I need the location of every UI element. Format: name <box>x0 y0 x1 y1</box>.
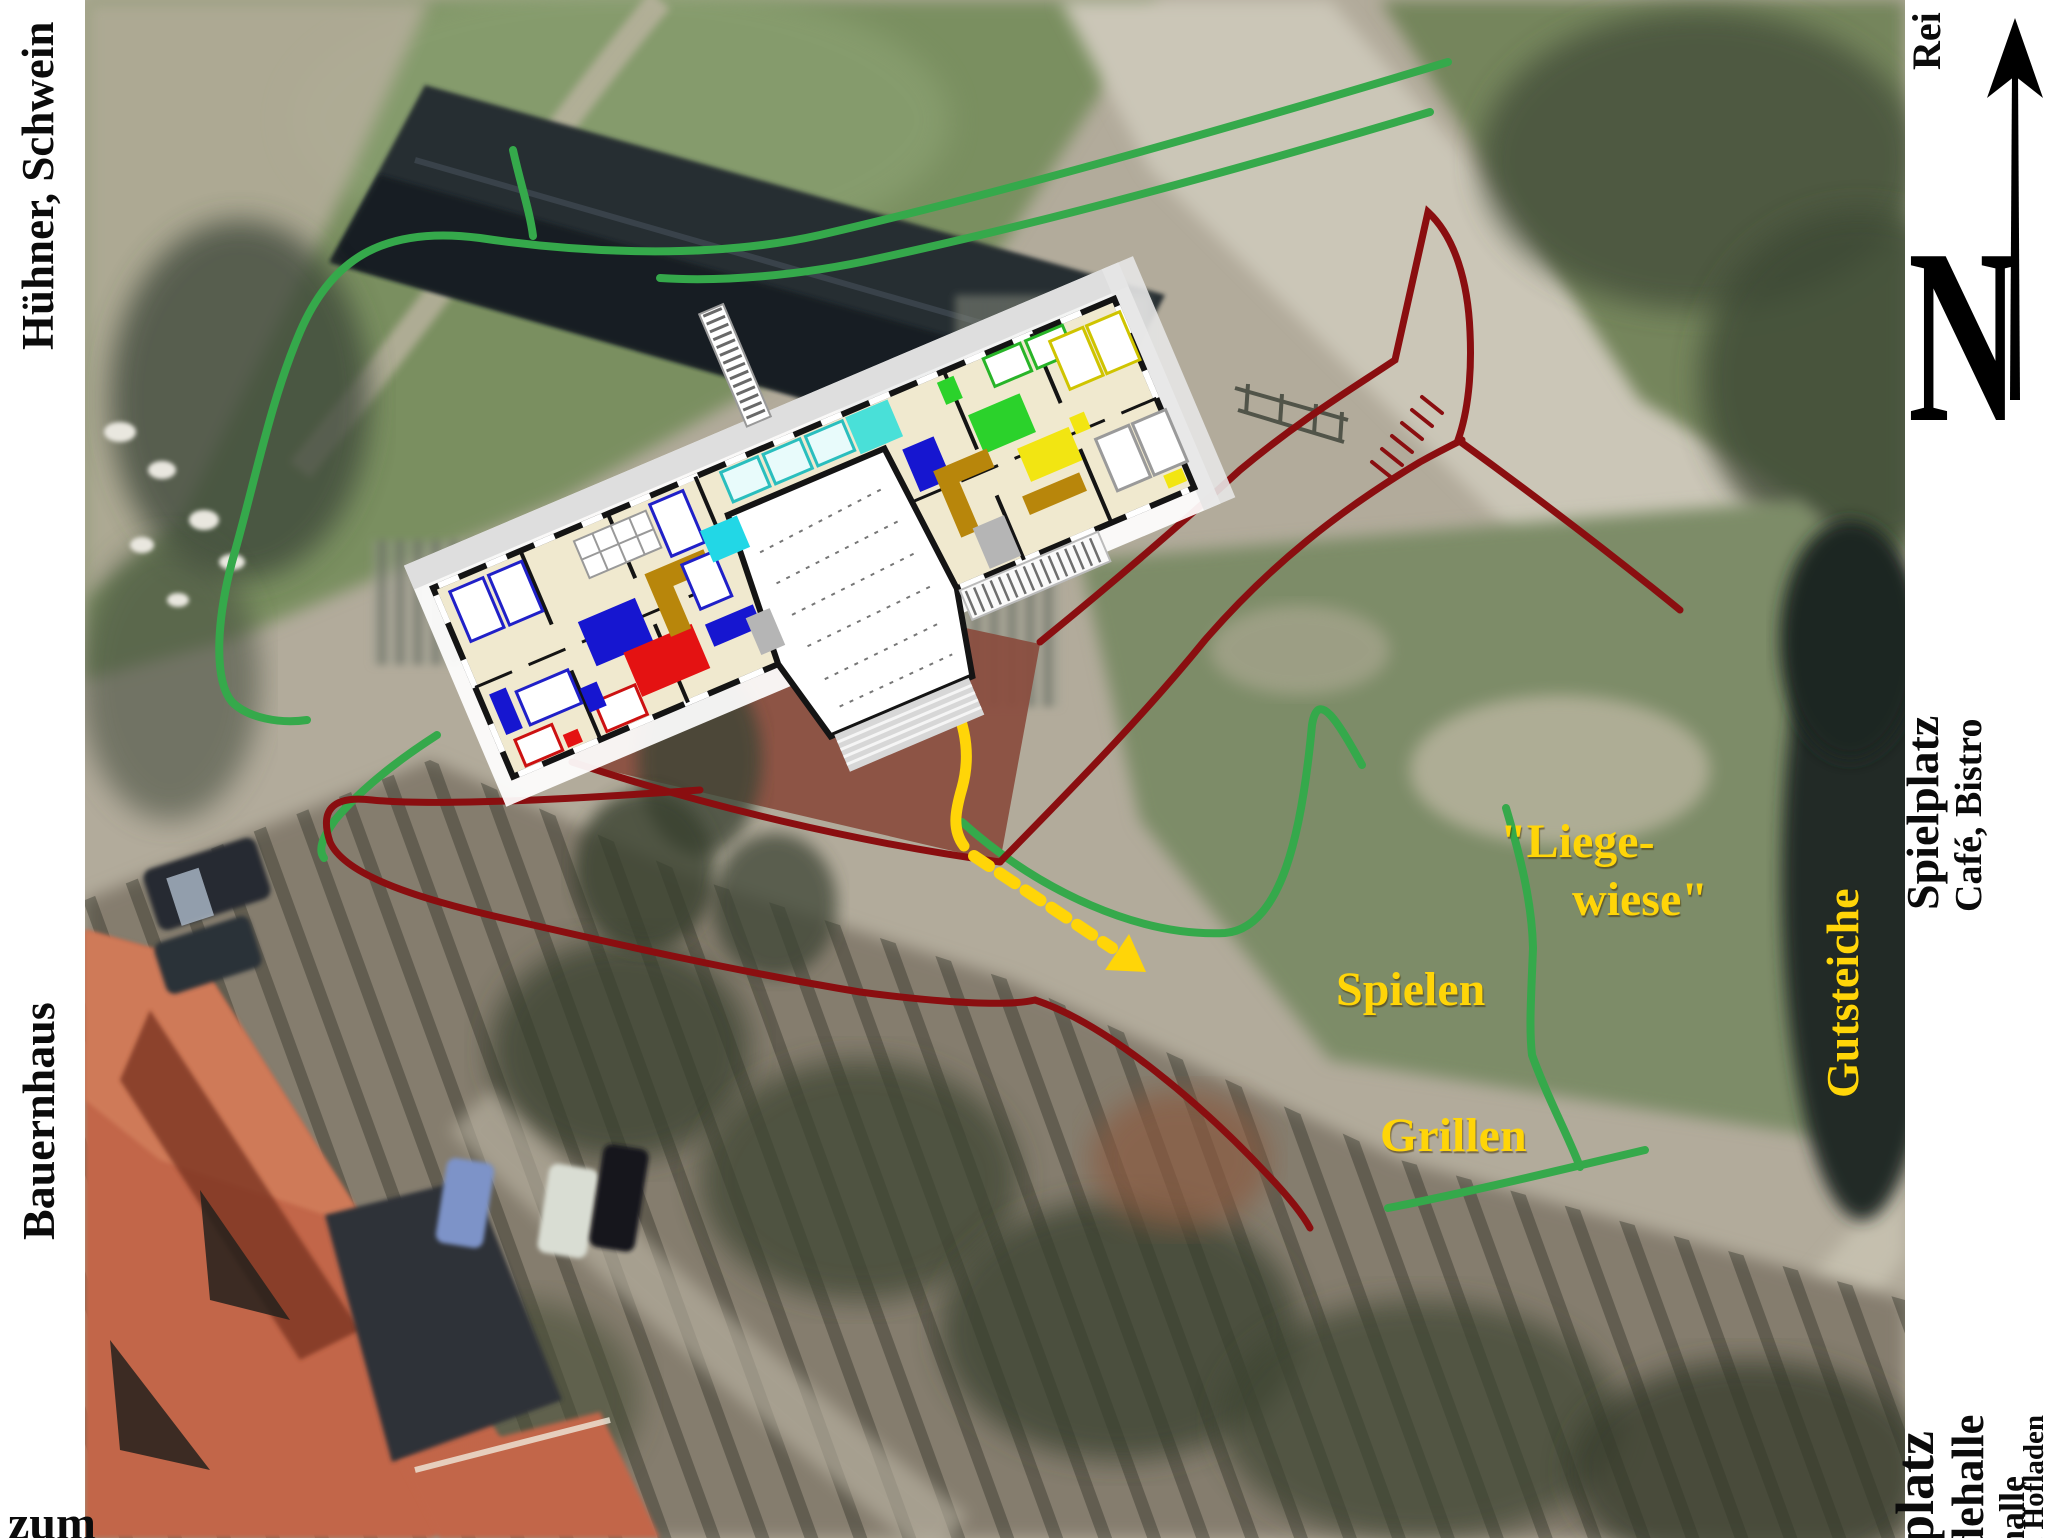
label-br-hofladen: i, Hofladen <box>2020 1415 2048 1538</box>
label-bauernhaus: Bauernhaus <box>16 1002 62 1240</box>
label-spielplatz: Spielplatz <box>1900 716 1946 910</box>
label-zum: zum <box>8 1500 96 1538</box>
label-spielen: Spielen <box>1336 966 1485 1014</box>
label-br-dehalle: dehalle <box>1946 1414 1991 1538</box>
site-plan-page: Hühner, Schwein Bauernhaus zum Rei N Spi… <box>0 0 2048 1538</box>
north-letter: N <box>1908 212 2020 462</box>
label-top-right: Rei <box>1907 12 1947 70</box>
label-br-platz: platz <box>1888 1431 1942 1538</box>
label-liegewiese-2: wiese" <box>1572 876 1708 924</box>
label-liegewiese-1: "Liege- <box>1500 818 1655 866</box>
bare-patch <box>1090 1090 1270 1230</box>
label-gutsteiche: Gutsteiche <box>1820 888 1866 1098</box>
label-grillen: Grillen <box>1380 1112 1527 1160</box>
label-top-left: Hühner, Schwein <box>16 22 61 350</box>
aerial-map <box>0 0 2048 1538</box>
aerial-photo <box>80 0 2020 1538</box>
label-cafe-bistro: Café, Bistro <box>1950 719 1988 913</box>
